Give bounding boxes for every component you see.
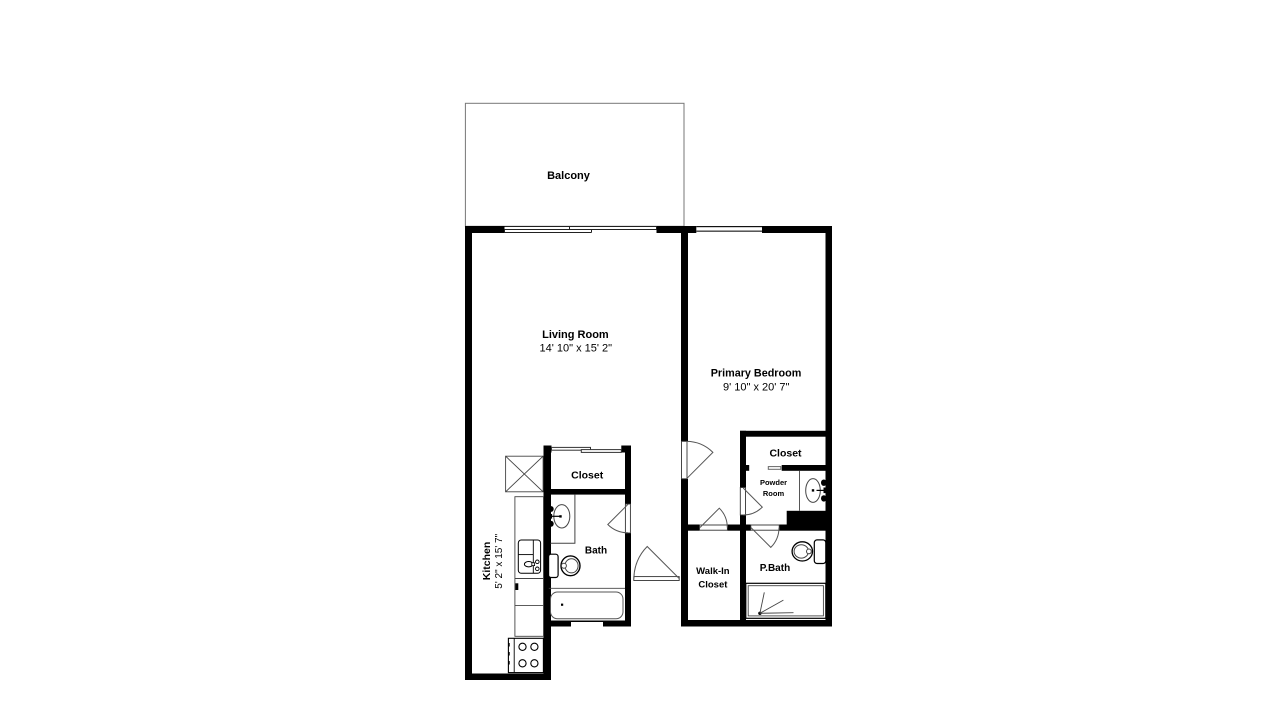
- svg-text:Primary Bedroom: Primary Bedroom: [711, 368, 802, 380]
- svg-text:Kitchen: Kitchen: [481, 542, 493, 581]
- svg-text:Closet: Closet: [571, 470, 604, 482]
- svg-text:P.Bath: P.Bath: [760, 563, 790, 574]
- svg-text:14' 10" x 15' 2": 14' 10" x 15' 2": [540, 343, 613, 355]
- svg-text:Powder: Powder: [760, 478, 787, 487]
- svg-text:Balcony: Balcony: [547, 170, 591, 182]
- svg-text:Walk-In: Walk-In: [696, 566, 730, 577]
- svg-text:Closet: Closet: [769, 448, 802, 460]
- svg-text:Closet: Closet: [698, 580, 728, 591]
- svg-text:Bath: Bath: [585, 546, 607, 557]
- svg-text:5' 2" x 15' 7": 5' 2" x 15' 7": [494, 533, 505, 588]
- svg-text:9' 10" x 20' 7": 9' 10" x 20' 7": [723, 382, 790, 394]
- svg-text:Living Room: Living Room: [542, 329, 609, 341]
- svg-text:Room: Room: [763, 489, 785, 498]
